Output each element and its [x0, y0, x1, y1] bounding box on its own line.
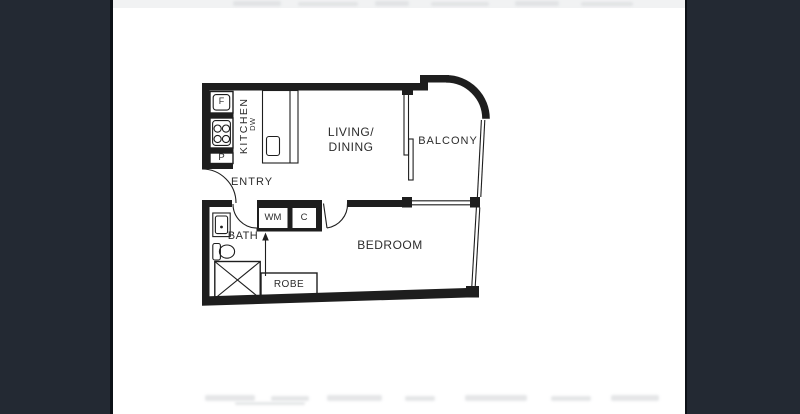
label-bath: BATH: [213, 230, 273, 242]
toilet-icon: [213, 244, 235, 261]
balcony-window: [481, 120, 485, 197]
label-dining: DINING: [311, 141, 391, 154]
floorplan-drawing: KITCHEN DW ENTRY LIVING/ DINING BALCONY …: [0, 0, 800, 414]
bath-door-arc: [233, 204, 257, 228]
bedroom-door-arc: [327, 204, 348, 229]
label-living: LIVING/: [311, 126, 391, 139]
wall-post: [470, 197, 480, 208]
label-cupboard: C: [291, 213, 317, 223]
floorplan-gallery-image[interactable]: KITCHEN DW ENTRY LIVING/ DINING BALCONY …: [113, 0, 685, 414]
shower-icon: [215, 262, 260, 299]
label-robe: ROBE: [261, 279, 317, 290]
label-entry: ENTRY: [222, 176, 282, 188]
label-pantry: P: [210, 153, 233, 163]
bottom-wall: [202, 288, 467, 306]
balcony-curved-wall: [446, 79, 486, 119]
balcony-window: [477, 120, 481, 197]
bottom-right-corner: [466, 286, 479, 298]
screenshot-stage: KITCHEN DW ENTRY LIVING/ DINING BALCONY …: [0, 0, 800, 414]
label-washing-machine: WM: [258, 213, 288, 223]
floorplan-linework: [0, 0, 800, 414]
sink-icon: [267, 137, 280, 156]
wall-post: [402, 197, 412, 208]
label-balcony: BALCONY: [408, 135, 488, 147]
kitchen-counter: [263, 91, 299, 164]
label-bedroom: BEDROOM: [345, 239, 435, 252]
label-fridge: F: [210, 97, 233, 107]
cooktop-icon: [210, 118, 234, 153]
bedroom-door-leaf: [324, 204, 328, 229]
label-dishwasher: DW: [249, 109, 257, 139]
